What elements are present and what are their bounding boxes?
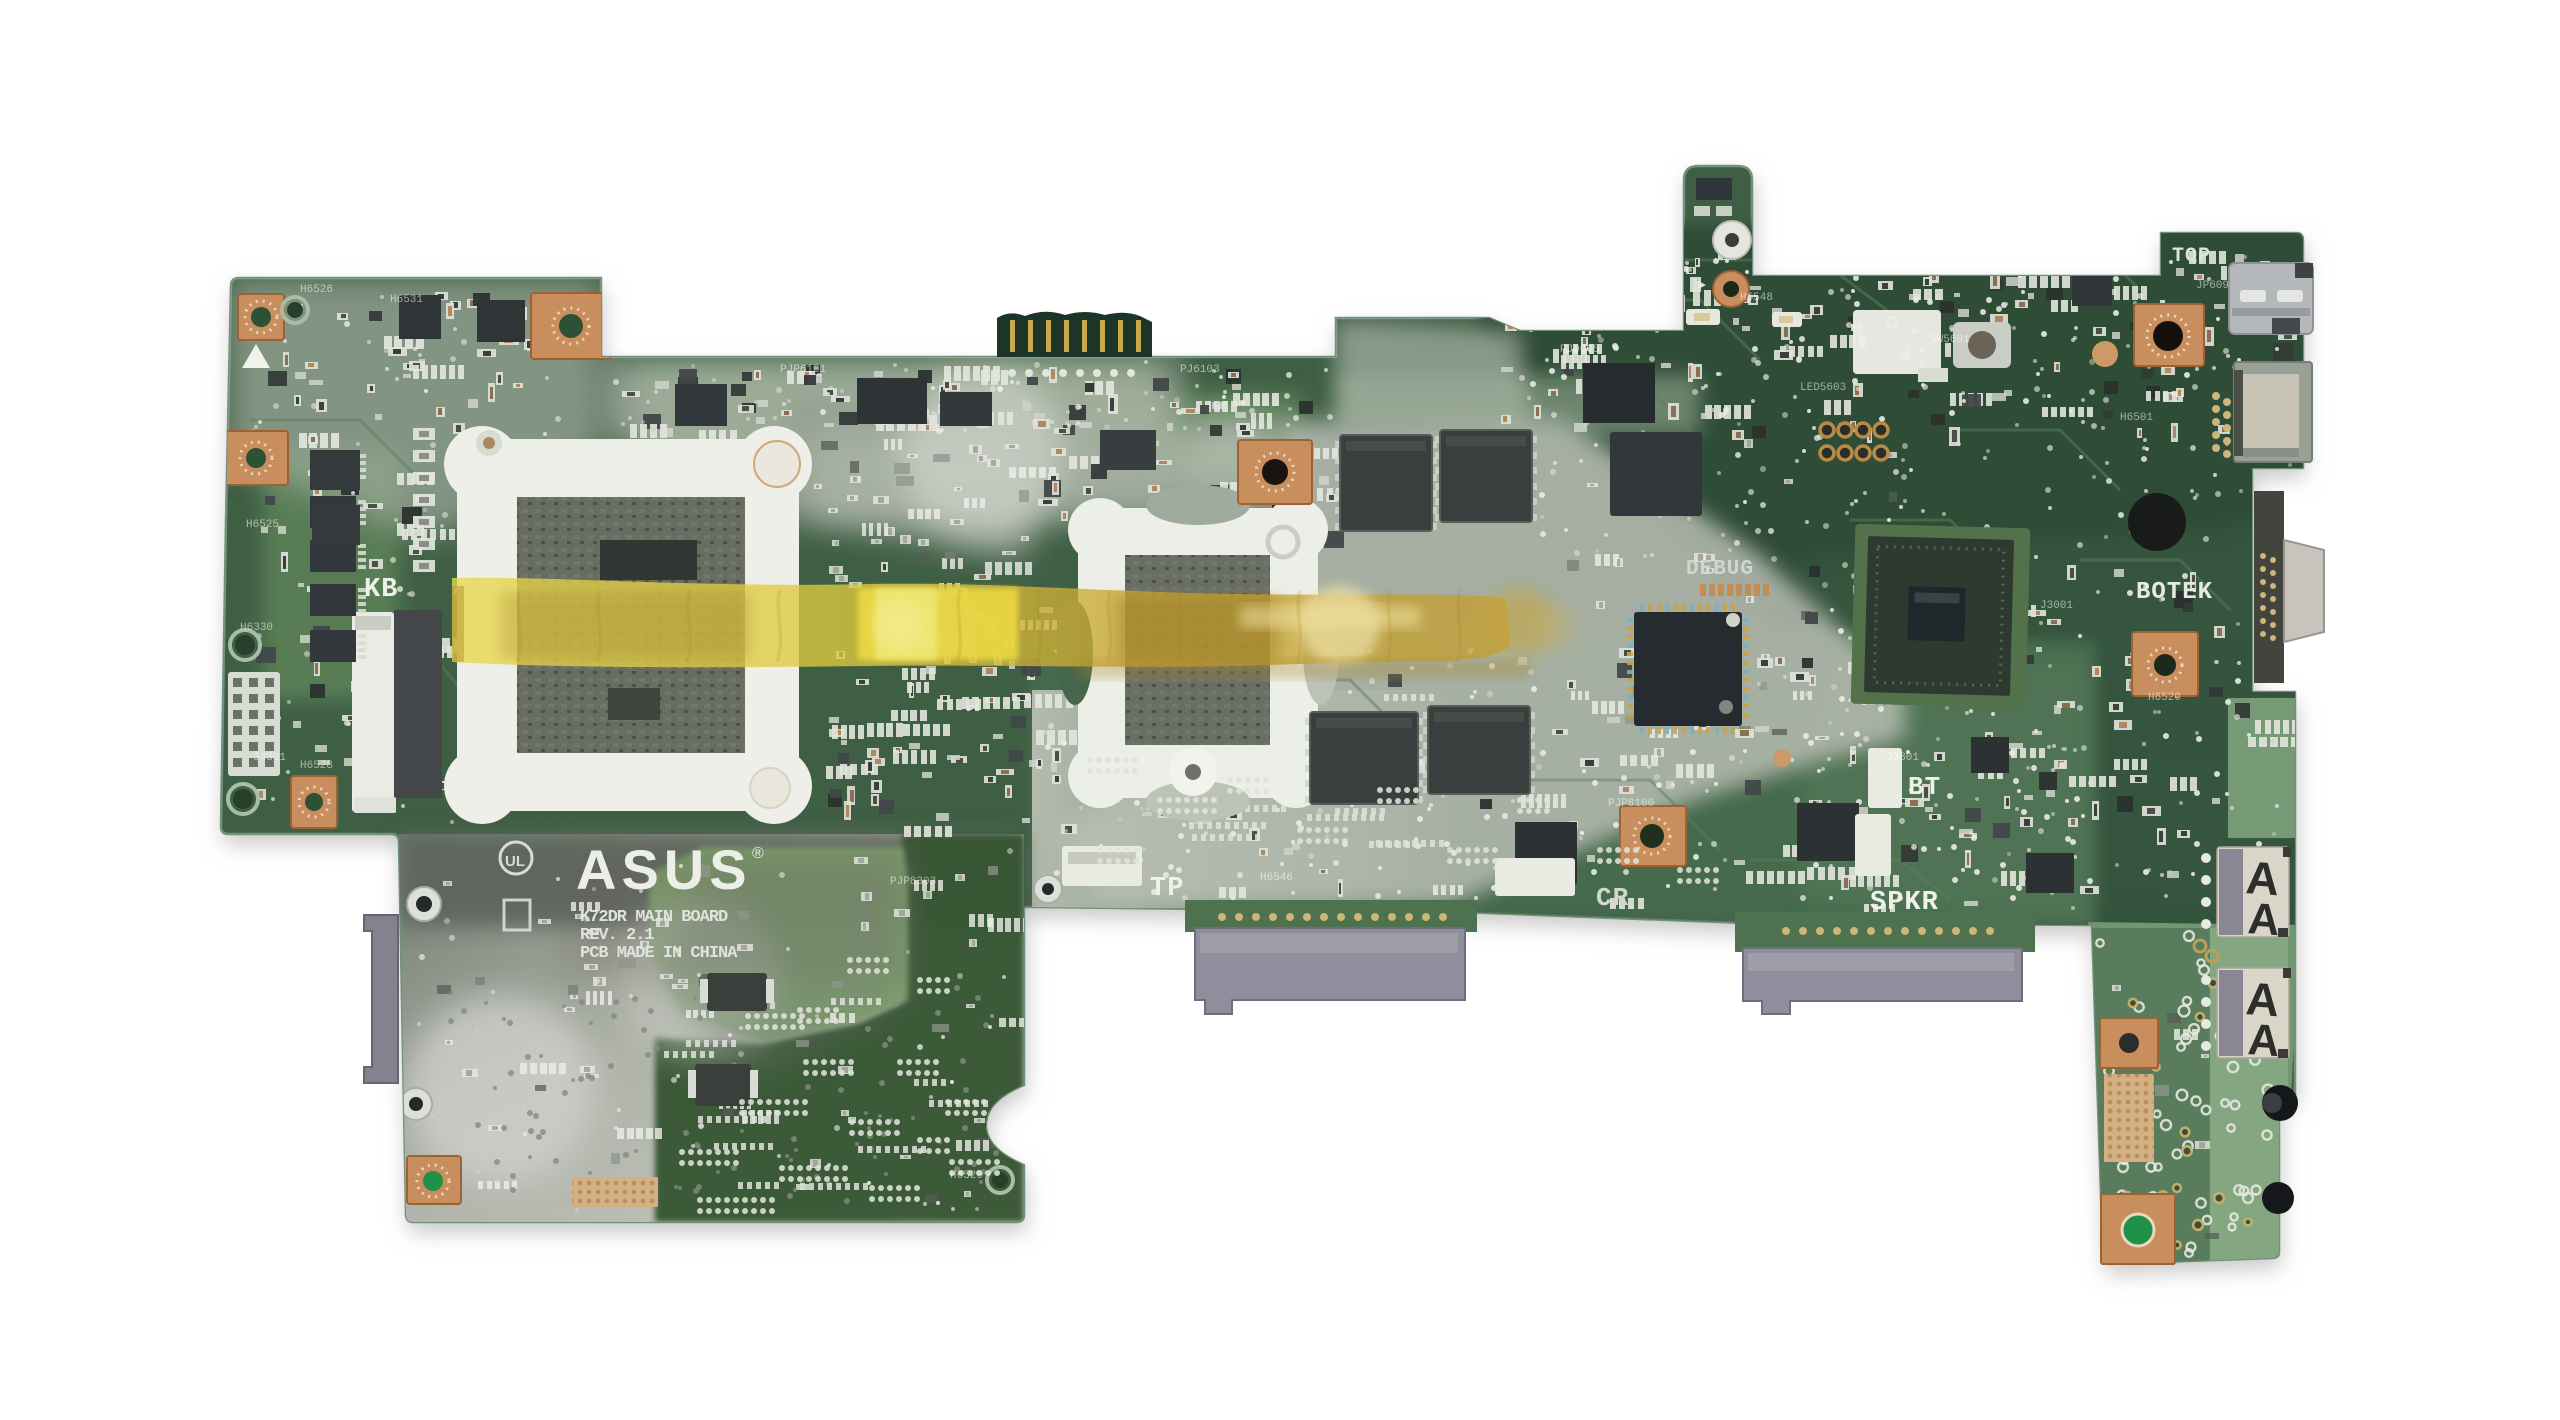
svg-text:REV. 2.1: REV. 2.1: [580, 926, 654, 945]
svg-text:H6525: H6525: [246, 519, 279, 531]
svg-text:PCB MADE IN CHINA: PCB MADE IN CHINA: [580, 944, 738, 963]
svg-text:TP: TP: [1150, 874, 1184, 904]
svg-text:PJ0605: PJ0605: [1560, 344, 1600, 356]
svg-text:H6330: H6330: [240, 622, 273, 634]
svg-text:H6520: H6520: [2148, 692, 2181, 704]
svg-text:A: A: [2246, 1015, 2281, 1066]
svg-text:PJ6103: PJ6103: [1180, 364, 1220, 376]
svg-text:PJP6101: PJP6101: [780, 364, 827, 376]
svg-text:ASUS: ASUS: [576, 838, 752, 901]
svg-text:UL: UL: [505, 853, 525, 870]
svg-text:H6526: H6526: [300, 284, 333, 296]
svg-text:SW5601: SW5601: [1930, 334, 1970, 346]
svg-text:H6528: H6528: [300, 760, 333, 772]
svg-text:H6548: H6548: [1740, 292, 1773, 304]
svg-text:PJP8303: PJP8303: [890, 876, 936, 888]
svg-text:TOP: TOP: [2172, 245, 2211, 268]
svg-text:DEBUG: DEBUG: [1686, 558, 1754, 581]
svg-text:®: ®: [752, 845, 764, 862]
svg-text:BOTEK: BOTEK: [2136, 579, 2213, 606]
svg-text:H6529: H6529: [950, 1170, 983, 1182]
svg-text:PJP8100: PJP8100: [1608, 798, 1654, 810]
svg-text:H6531: H6531: [390, 294, 423, 306]
svg-text:J3801: J3801: [1886, 752, 1919, 764]
svg-text:BT: BT: [1908, 772, 1941, 802]
svg-text:A: A: [2246, 894, 2281, 945]
svg-text:J3001: J3001: [2040, 600, 2073, 612]
svg-text:LED5603: LED5603: [1800, 382, 1846, 394]
svg-text:H6501: H6501: [2120, 412, 2153, 424]
svg-text:KB: KB: [364, 575, 398, 605]
svg-text:K72DR MAIN BOARD: K72DR MAIN BOARD: [580, 908, 728, 927]
svg-text:J4301: J4301: [253, 752, 286, 764]
svg-text:H6546: H6546: [1260, 872, 1293, 884]
svg-text:H6504: H6504: [2062, 1044, 2095, 1056]
svg-text:CR: CR: [1596, 883, 1629, 913]
